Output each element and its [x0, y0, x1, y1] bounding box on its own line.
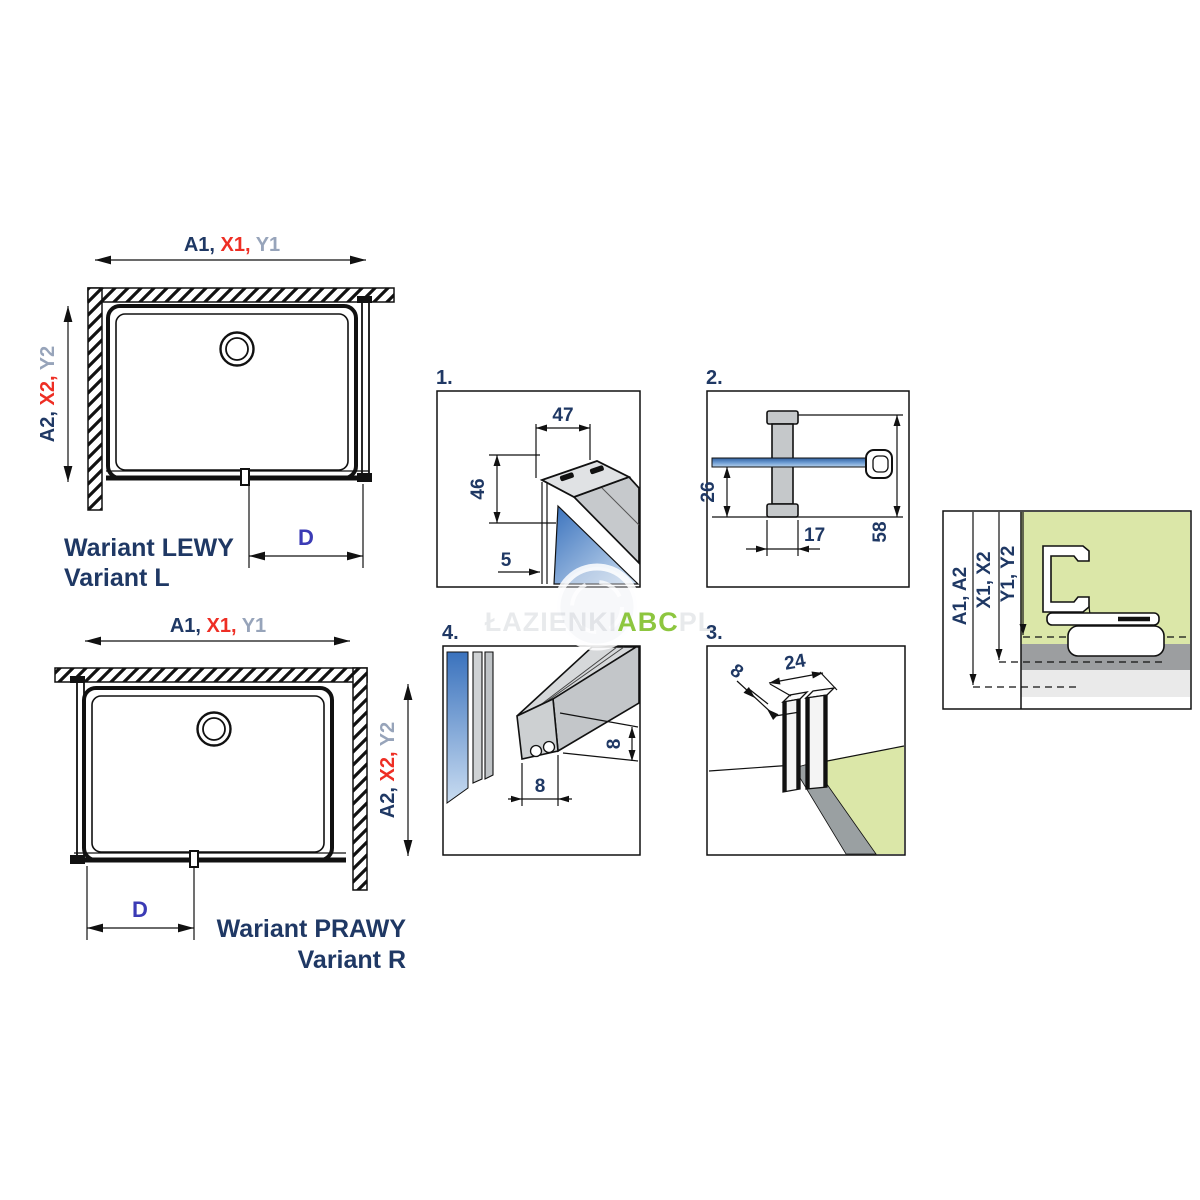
- variant-r-title-pl: Wariant PRAWY: [217, 915, 407, 943]
- profile-section-detail: A1, A2 X1, X2 Y1, Y2: [943, 511, 1191, 709]
- detail-1-number: 1.: [436, 367, 453, 389]
- variant-r-width-dimension: A1, X1, Y1: [85, 615, 350, 641]
- svg-text:24: 24: [783, 650, 808, 674]
- detail-2-frame: [707, 391, 909, 587]
- svg-text:46: 46: [468, 478, 489, 499]
- door-handle: [190, 851, 198, 867]
- wall-top: [88, 288, 394, 302]
- svg-text:17: 17: [804, 525, 825, 546]
- detail-3: 3. 24 8: [706, 622, 905, 855]
- detail-4-number: 4.: [442, 622, 459, 644]
- sliding-door: [106, 469, 369, 485]
- variant-l-door-dimension: D: [249, 484, 363, 568]
- variant-l-height-label: A2, X2, Y2: [37, 346, 59, 442]
- variant-l-title-en: Variant L: [64, 564, 170, 592]
- variant-l-height-dimension: A2, X2, Y2: [37, 306, 68, 482]
- svg-text:47: 47: [552, 405, 573, 426]
- svg-text:Y1, Y2: Y1, Y2: [998, 546, 1019, 603]
- profile-strip: [485, 652, 493, 779]
- svg-text:5: 5: [501, 550, 512, 571]
- variant-l-width-label: A1, X1, Y1: [184, 234, 280, 256]
- detail-1: 1. 47 46 5: [436, 367, 640, 587]
- glass-panel: [712, 458, 868, 467]
- variant-l-title-pl: Wariant LEWY: [64, 534, 234, 562]
- shower-enclosure-diagram: A1, X1, Y1 A2, X2, Y2 D: [0, 0, 1200, 1200]
- wall-profile-end: [866, 450, 892, 478]
- svg-text:58: 58: [870, 521, 891, 542]
- wall-left: [88, 288, 102, 510]
- sliding-door: [74, 851, 346, 867]
- variant-r-height-dimension: A2, X2, Y2: [377, 684, 408, 856]
- variant-r-width-label: A1, X1, Y1: [170, 615, 266, 637]
- wall-top: [55, 668, 367, 682]
- shower-tray: [84, 688, 332, 860]
- floor-band: [1021, 670, 1190, 697]
- watermark-text: ŁAZIENKIABCPL: [485, 607, 716, 637]
- door-handle: [241, 469, 249, 485]
- svg-text:26: 26: [698, 481, 719, 502]
- svg-text:8: 8: [604, 739, 625, 750]
- detail-2-number: 2.: [706, 367, 723, 389]
- variant-r-door-dimension: D: [87, 866, 194, 940]
- svg-text:8: 8: [535, 776, 546, 797]
- svg-text:X1, X2: X1, X2: [974, 551, 995, 608]
- variant-r-diagram: A1, X1, Y1 A2, X2, Y2 D: [55, 615, 408, 974]
- variant-r-height-label: A2, X2, Y2: [377, 722, 399, 818]
- seal-profile: [1068, 626, 1164, 656]
- variant-l-diagram: A1, X1, Y1 A2, X2, Y2 D: [37, 234, 394, 592]
- variant-r-title-en: Variant R: [298, 946, 406, 974]
- wall-bracket: [357, 296, 372, 303]
- technical-drawing-page: A1, X1, Y1 A2, X2, Y2 D: [0, 0, 1200, 1200]
- profile-strip: [473, 652, 482, 783]
- wall-bracket: [70, 676, 85, 683]
- gasket-channel: [544, 742, 555, 753]
- svg-text:A1, A2: A1, A2: [950, 567, 971, 625]
- detail-4: 4. 8 8: [442, 622, 640, 855]
- glass-panel: [447, 652, 468, 803]
- shower-tray: [108, 306, 356, 478]
- gasket-channel: [531, 746, 542, 757]
- wall-right: [353, 668, 367, 890]
- variant-l-door-label: D: [298, 525, 314, 550]
- glass-panels: [783, 688, 834, 792]
- variant-l-width-dimension: A1, X1, Y1: [95, 234, 366, 260]
- detail-2: 2. 26 17 58: [698, 367, 909, 587]
- fixed-glass-panel-right: [357, 296, 372, 482]
- variant-r-door-label: D: [132, 897, 148, 922]
